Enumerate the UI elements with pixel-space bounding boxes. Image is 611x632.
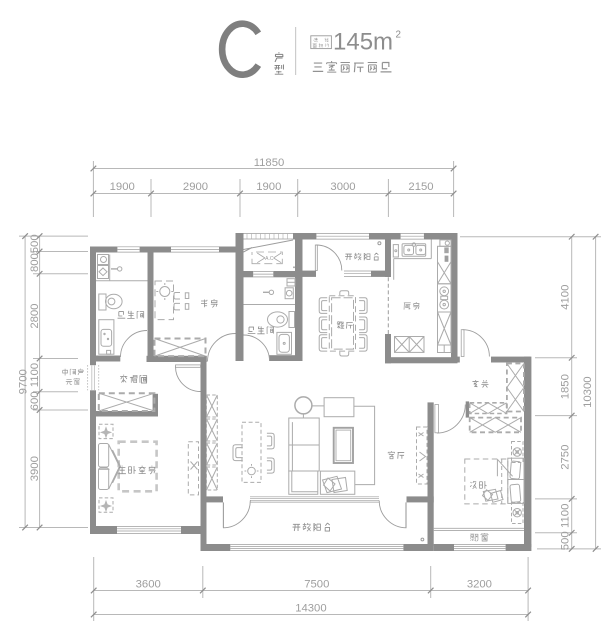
svg-text:2150: 2150 <box>408 181 433 193</box>
svg-text:10300: 10300 <box>582 376 594 407</box>
svg-text:A.C: A.C <box>265 256 274 262</box>
svg-text:2800: 2800 <box>29 304 41 329</box>
svg-text:2750: 2750 <box>560 445 572 470</box>
svg-text:2: 2 <box>396 29 401 40</box>
svg-text:1100: 1100 <box>29 363 41 387</box>
svg-text:3600: 3600 <box>136 579 161 591</box>
svg-text:11850: 11850 <box>254 157 285 169</box>
svg-text:1900: 1900 <box>110 181 135 193</box>
svg-text:14300: 14300 <box>295 603 326 615</box>
svg-text:3000: 3000 <box>330 181 355 193</box>
svg-text:3900: 3900 <box>29 456 41 481</box>
svg-text:2900: 2900 <box>183 181 208 193</box>
svg-text:1100: 1100 <box>560 504 572 528</box>
svg-text:1900: 1900 <box>256 181 281 193</box>
svg-text:800: 800 <box>29 253 41 272</box>
svg-text:3200: 3200 <box>467 579 492 591</box>
svg-text:500: 500 <box>560 531 572 550</box>
svg-text:500: 500 <box>29 234 41 253</box>
svg-text:600: 600 <box>29 391 41 410</box>
svg-text:9700: 9700 <box>18 369 30 394</box>
svg-text:7500: 7500 <box>304 579 329 591</box>
svg-text:1850: 1850 <box>560 374 572 399</box>
svg-text:145m: 145m <box>333 29 393 56</box>
svg-text:4100: 4100 <box>560 285 572 310</box>
